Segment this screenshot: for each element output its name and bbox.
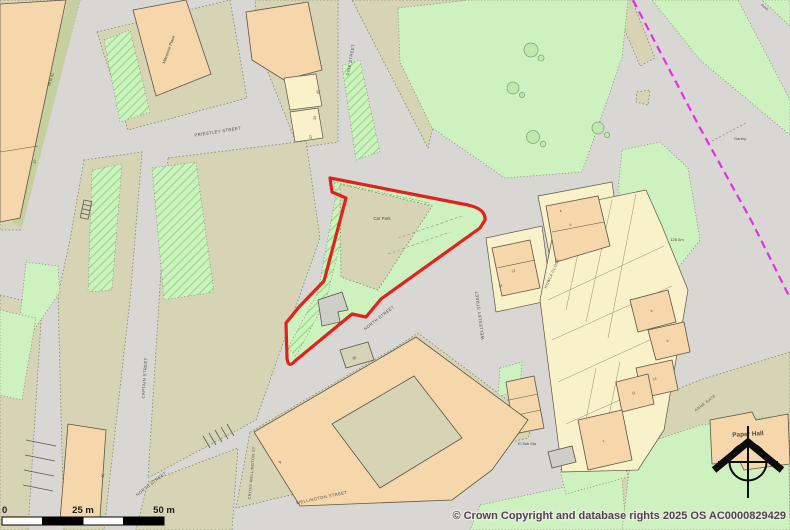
map-label-gantry: Gantry xyxy=(734,136,746,141)
house-number: 45 xyxy=(316,90,320,94)
map-label-el-sub-sta: El Sub Sta xyxy=(518,442,537,446)
building xyxy=(290,108,323,142)
map-canvas: PRIESTLEY STREETPINE STREETMilestone Pla… xyxy=(0,0,790,530)
area-label-car-park: Car Park xyxy=(373,216,391,221)
spot-height-label: 126.5m xyxy=(670,237,684,242)
house-number: 40 xyxy=(101,473,106,478)
house-number: 37 xyxy=(309,135,313,139)
building xyxy=(578,410,632,470)
os-map: PRIESTLEY STREETPINE STREETMilestone Pla… xyxy=(0,0,790,530)
attribution-text: © Crown Copyright and database rights 20… xyxy=(452,510,786,522)
scale-label-end: 50 m xyxy=(153,505,175,516)
scale-label-zero: 0 xyxy=(2,505,7,516)
scale-label-mid: 25 m xyxy=(72,505,94,516)
house-number: 39 xyxy=(313,116,317,120)
